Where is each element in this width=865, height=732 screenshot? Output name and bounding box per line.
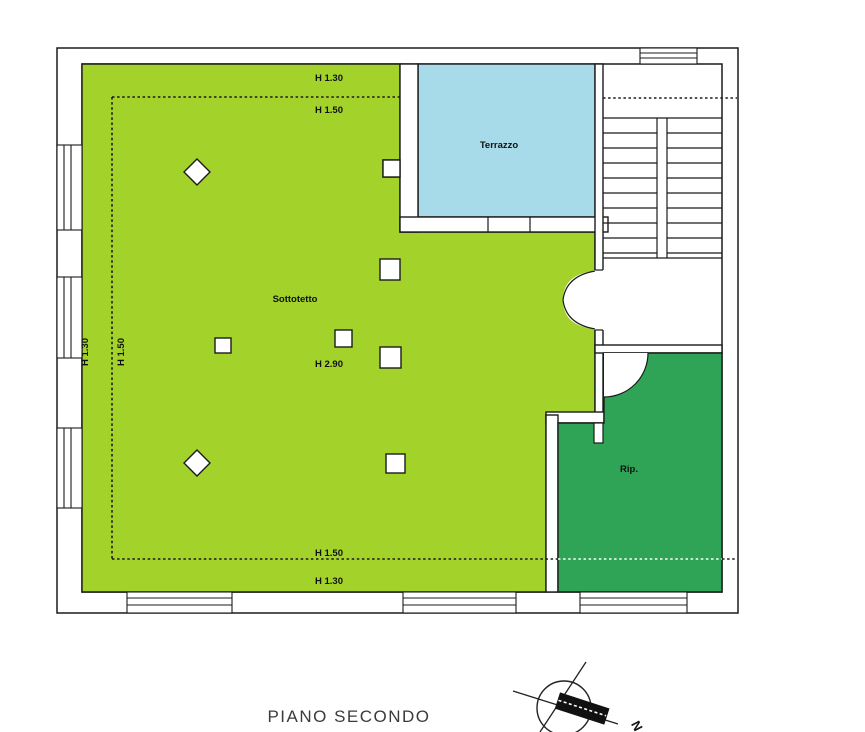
skylight-square-4 [215, 338, 231, 353]
label-sottotetto: Sottotetto [273, 294, 318, 305]
label-h150-top: H 1.50 [315, 105, 343, 116]
door-opening [594, 270, 604, 330]
window-top-stairs [640, 48, 697, 64]
skylight-square-1 [380, 259, 400, 280]
compass-north-letter: N [628, 718, 646, 732]
terrazzo-left-wall [400, 64, 418, 232]
rip-door-jamb [594, 423, 603, 443]
label-h150-left: H 1.50 [116, 338, 127, 366]
window-left-3 [57, 428, 82, 508]
rip-left-wall [546, 415, 558, 592]
label-h150-bottom: H 1.50 [315, 548, 343, 559]
window-bottom-1 [127, 592, 232, 613]
floor-plan-page: H 1.30 H 1.50 H 1.50 H 1.30 H 1.30 H 1.5… [0, 0, 865, 732]
window-bottom-3 [580, 592, 687, 613]
label-h130-top: H 1.30 [315, 73, 343, 84]
skylight-square-5 [386, 454, 405, 473]
label-h130-bottom: H 1.30 [315, 576, 343, 587]
window-left-1 [57, 145, 82, 230]
terrazzo-wall-pilaster [383, 160, 400, 177]
label-rip: Rip. [620, 464, 638, 475]
north-compass: N [513, 662, 646, 732]
label-h290-center: H 2.90 [315, 359, 343, 370]
label-terrazzo: Terrazzo [480, 140, 519, 151]
skylight-square-2 [335, 330, 352, 347]
compass-needle [555, 692, 610, 724]
floor-plan-drawing: H 1.30 H 1.50 H 1.50 H 1.30 H 1.30 H 1.5… [0, 0, 865, 732]
skylight-square-3 [380, 347, 401, 368]
window-bottom-2 [403, 592, 516, 613]
landing-bottom-wall [595, 345, 722, 353]
label-h130-left: H 1.30 [80, 338, 91, 366]
window-left-2 [57, 277, 82, 358]
terrazzo-bottom-wall [400, 217, 608, 232]
floor-title: PIANO SECONDO [267, 707, 430, 726]
stair-left-wall [595, 64, 603, 423]
